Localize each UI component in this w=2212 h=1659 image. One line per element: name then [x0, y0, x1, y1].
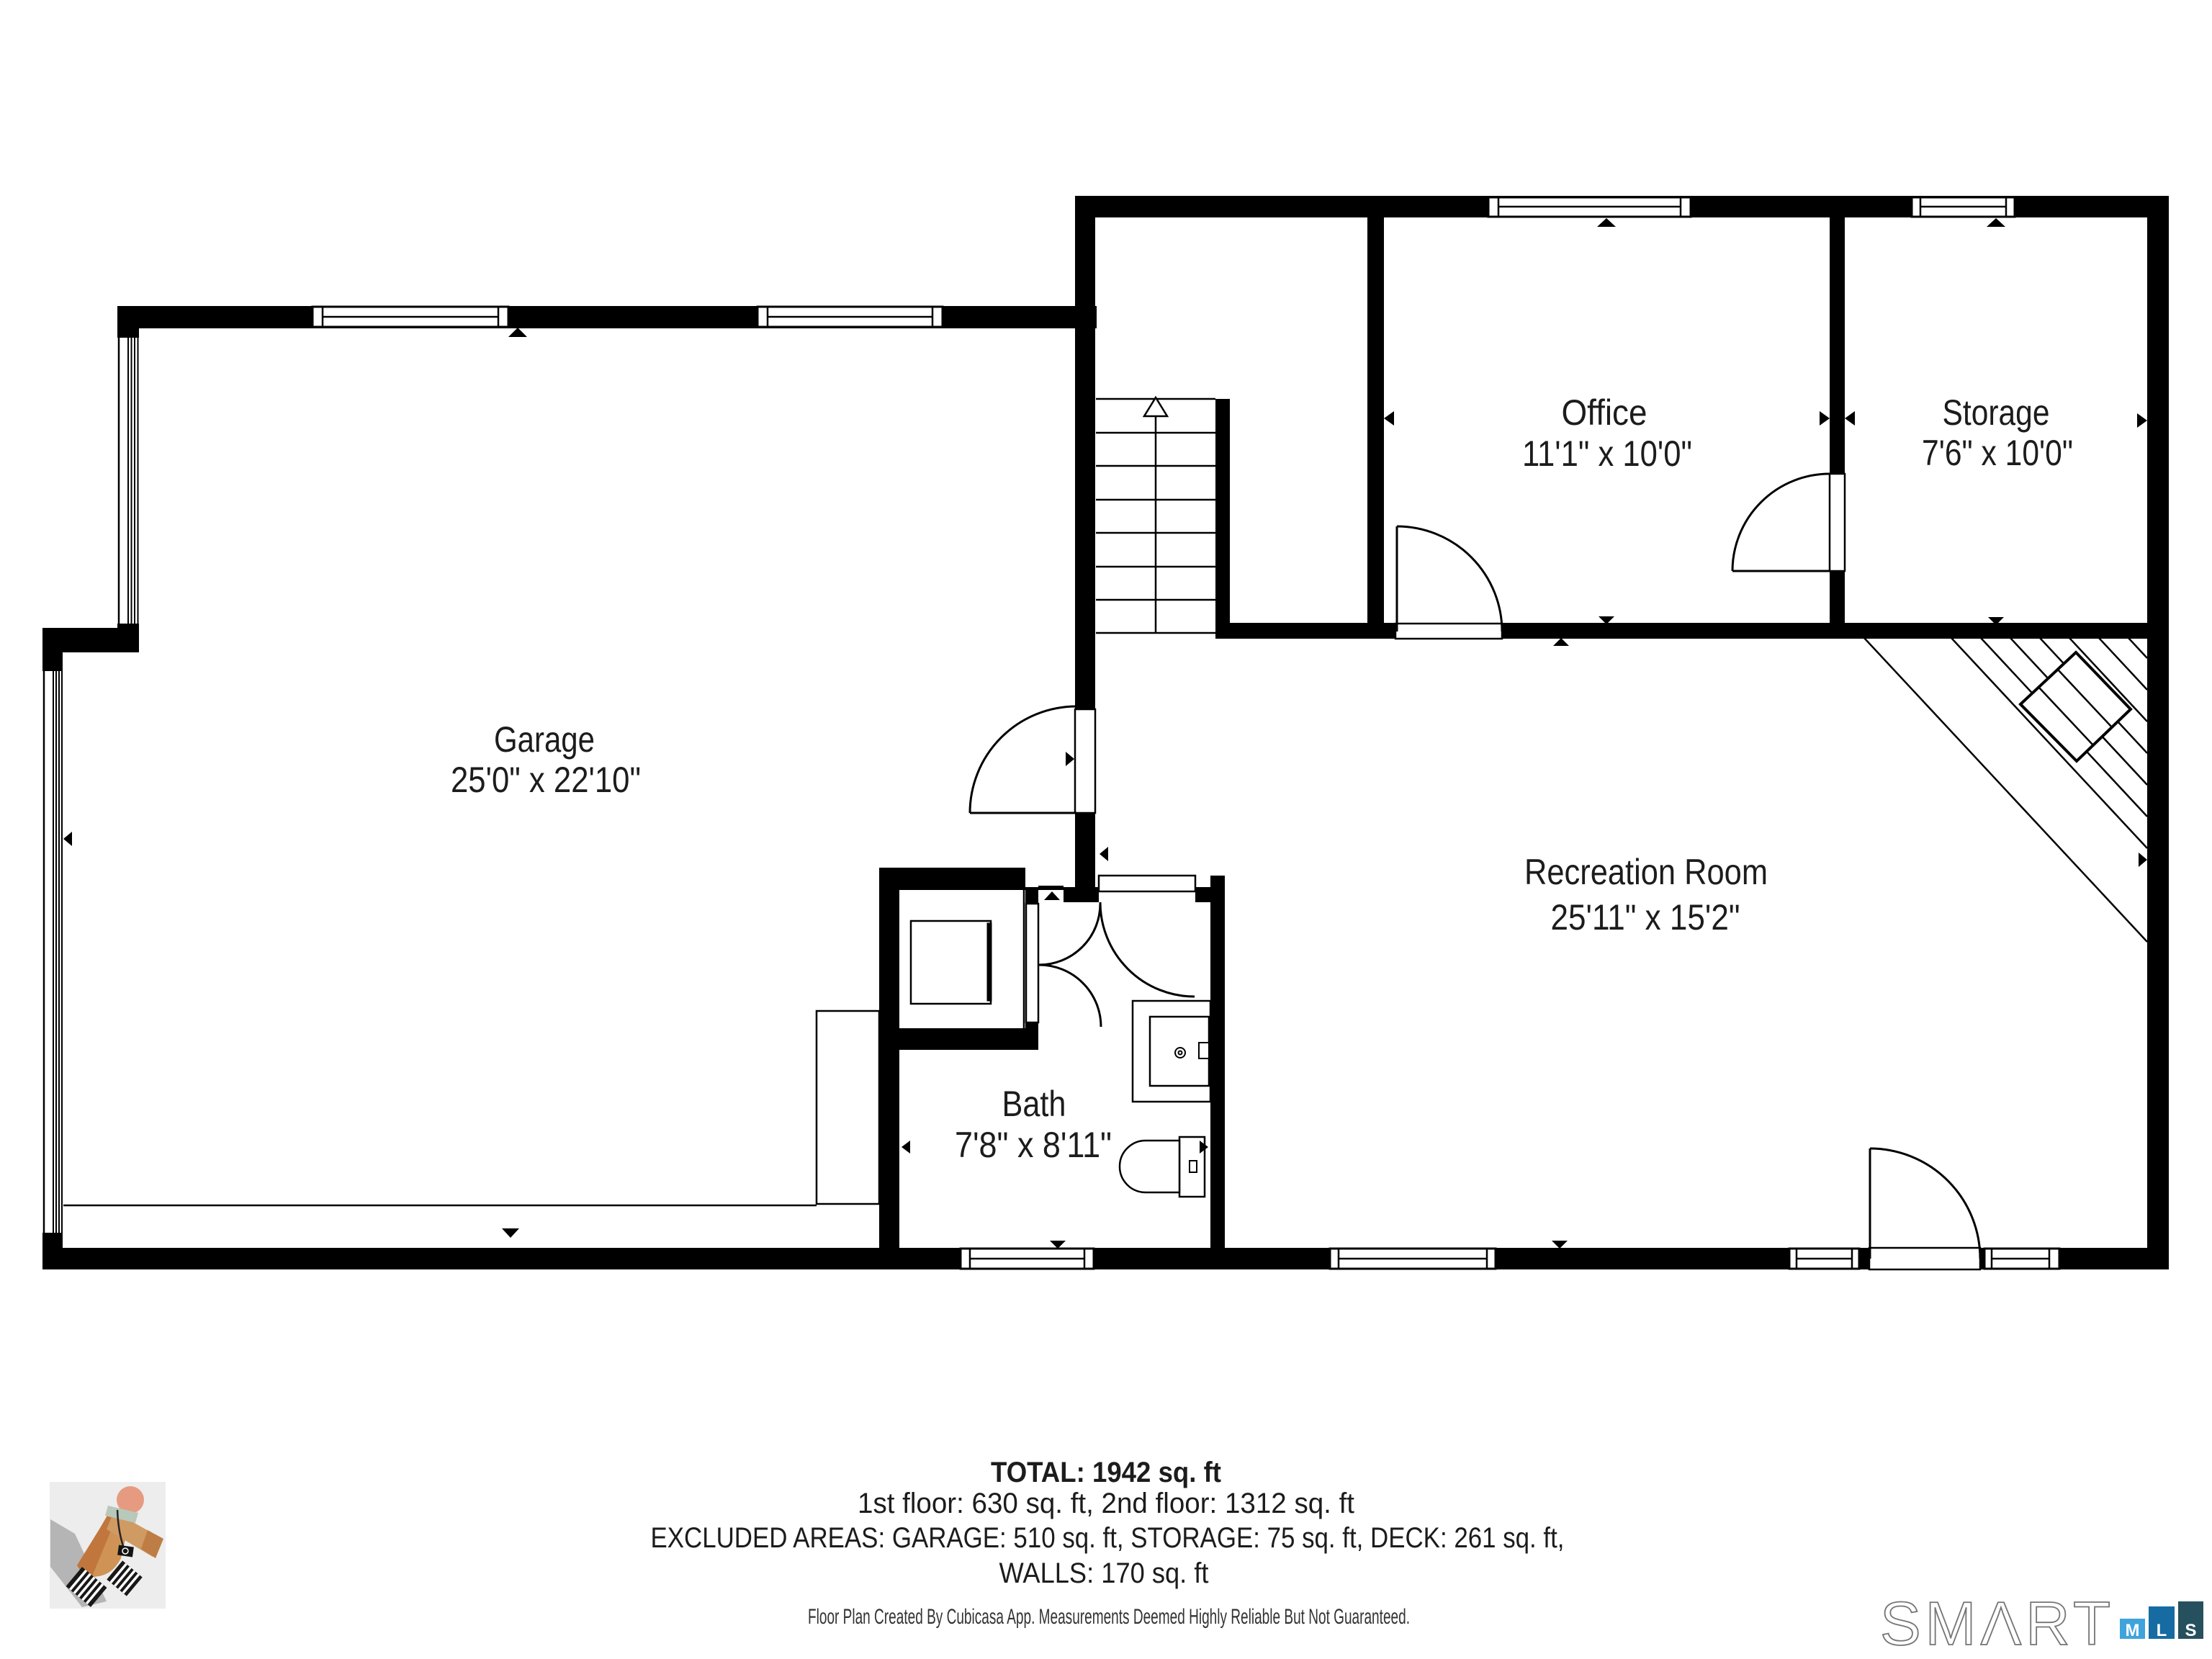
- svg-text:M: M: [2126, 1621, 2140, 1640]
- svg-text:SMΛRT: SMΛRT: [1880, 1590, 2115, 1658]
- svg-text:Garage: Garage: [494, 719, 595, 760]
- svg-text:TOTAL: 1942 sq. ft: TOTAL: 1942 sq. ft: [991, 1457, 1221, 1488]
- svg-text:7'6" x 10'0": 7'6" x 10'0": [1922, 433, 2073, 473]
- svg-text:Storage: Storage: [1943, 392, 2050, 433]
- svg-text:WALLS: 170 sq. ft: WALLS: 170 sq. ft: [999, 1557, 1209, 1589]
- svg-text:EXCLUDED AREAS: GARAGE: 510 sq: EXCLUDED AREAS: GARAGE: 510 sq. ft, STOR…: [651, 1522, 1565, 1554]
- svg-text:7'8" x 8'11": 7'8" x 8'11": [955, 1125, 1112, 1165]
- svg-text:1st floor: 630 sq. ft, 2nd flo: 1st floor: 630 sq. ft, 2nd floor: 1312 s…: [858, 1488, 1354, 1519]
- svg-text:Bath: Bath: [1002, 1084, 1066, 1124]
- svg-text:Recreation Room: Recreation Room: [1524, 852, 1768, 892]
- svg-text:L: L: [2157, 1621, 2167, 1640]
- svg-text:11'1" x 10'0": 11'1" x 10'0": [1522, 433, 1692, 474]
- svg-text:S: S: [2185, 1621, 2196, 1640]
- svg-text:Office: Office: [1562, 392, 1647, 433]
- svg-text:25'0" x 22'10": 25'0" x 22'10": [451, 760, 641, 800]
- svg-text:Floor Plan Created By Cubicasa: Floor Plan Created By Cubicasa App. Meas…: [808, 1605, 1410, 1629]
- svg-text:25'11" x 15'2": 25'11" x 15'2": [1551, 897, 1740, 938]
